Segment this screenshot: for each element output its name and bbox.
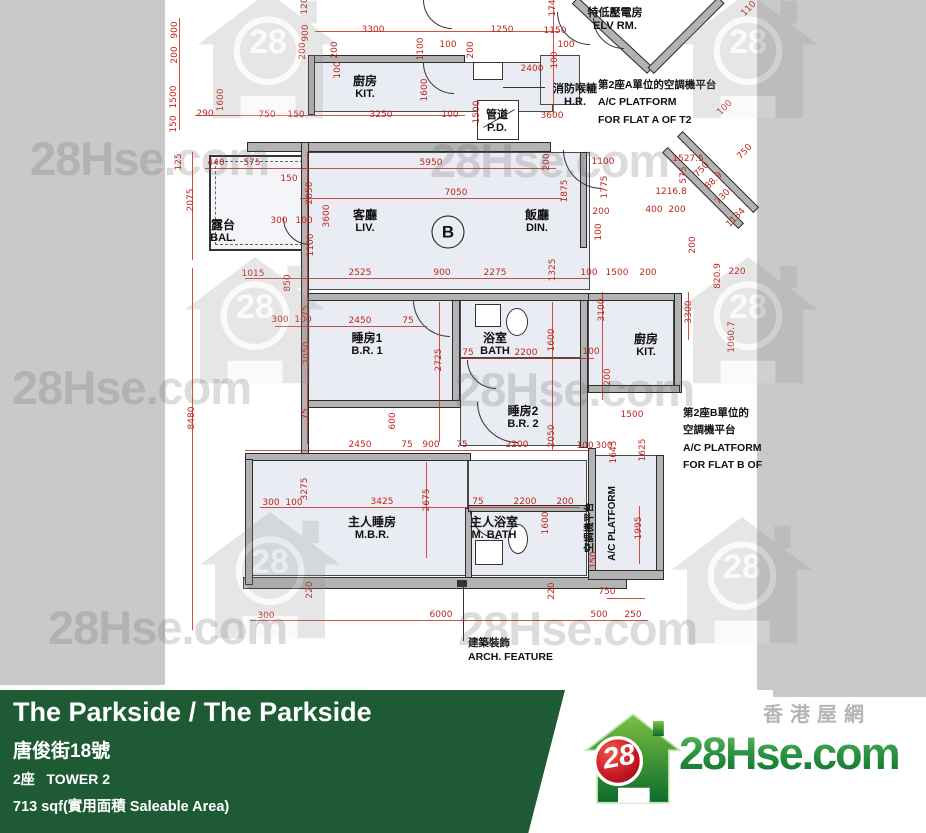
dimension-label: 200 (668, 205, 685, 215)
dimension-label: 3600 (541, 111, 564, 121)
dimension-label: 1500 (472, 101, 482, 124)
estate-area: 713 sqf(實用面積 Saleable Area) (13, 795, 229, 816)
dimension-label: 100 (550, 51, 560, 68)
dimension-label: 200 (170, 46, 180, 63)
dimension-label: 100 (441, 110, 458, 120)
dimension-label: 575 (679, 166, 689, 183)
dimension-label: 750 (735, 142, 754, 161)
dimension-label: 100 (580, 268, 597, 278)
dimension-label: 75 (301, 408, 311, 419)
dimension-label: 2050 (302, 342, 312, 365)
dimension-label: 220 (547, 582, 557, 599)
dimension-label: 150 (280, 174, 297, 184)
dimension-label: 3425 (371, 497, 394, 507)
dimension-label: 300 (270, 216, 287, 226)
dimension-label: 750 (598, 587, 615, 597)
dimension-label: 7050 (445, 188, 468, 198)
dimension-label: 2200 (515, 348, 538, 358)
dimension-label: 75 (462, 348, 473, 358)
dimension-label: 1600 (420, 79, 430, 102)
dimension-label: 750 (258, 110, 275, 120)
dimension-label: 200 (330, 41, 340, 58)
dimension-label: 850 (283, 274, 293, 291)
background-corner (773, 690, 926, 697)
dimension-label: 200 (639, 268, 656, 278)
dimension-label: 250 (624, 610, 641, 620)
dimension-label: 100 (333, 61, 343, 78)
dimension-label: 75 (401, 440, 412, 450)
dimension-label: 1527.5 (672, 154, 704, 164)
dimension-label: 900 (433, 268, 450, 278)
dimension-label: 3100 (597, 299, 607, 322)
dimension-label: 820.9 (713, 263, 723, 289)
dimension-label: 100 (439, 40, 456, 50)
dimension-label: 1995 (634, 517, 644, 540)
dimension-label: 1600 (216, 89, 226, 112)
dimension-label: 75 (301, 305, 311, 316)
dimension-label: 2400 (521, 64, 544, 74)
dimension-label: 2725 (434, 349, 444, 372)
dimension-label: 110 (739, 0, 758, 19)
dimension-label: 2450 (349, 440, 372, 450)
dimension-label: 575 (243, 158, 260, 168)
dimension-label: 200 (298, 42, 308, 59)
dimension-label: 6000 (430, 610, 453, 620)
dimension-label: 100 (295, 216, 312, 226)
dimension-label: 1100 (306, 234, 316, 257)
dimension-label: 1216.8 (655, 187, 687, 197)
dimension-label: 300 (271, 315, 288, 325)
dimension-label: 2675 (422, 489, 432, 512)
estate-tower: 2座 TOWER 2 (13, 769, 110, 789)
floor-plan-sheet: 廚房 KIT. 露台 BAL. 客廳 LIV. B 飯廳 DIN. 睡房1 B.… (165, 0, 757, 690)
dimension-label: 200 (556, 497, 573, 507)
dimension-label: 100 (576, 441, 593, 451)
dimension-label: 2200 (514, 497, 537, 507)
dimension-label: 8480 (187, 407, 197, 430)
dimension-label: 900 (170, 21, 180, 38)
dimension-label: 2275 (484, 268, 507, 278)
dimension-label: 200 (603, 368, 613, 385)
dimension-layer: 9002001500150160029075015032501003300125… (165, 0, 757, 690)
dimension-label: 1134 (724, 206, 747, 229)
dimension-label: 3600 (322, 205, 332, 228)
dimension-label: 3300 (362, 25, 385, 35)
dimension-label: 120 (300, 0, 310, 15)
footer-bar: The Parkside / The Parkside 唐俊街18號 2座 TO… (0, 690, 926, 833)
logo-wordmark: 28Hse.com (679, 728, 899, 780)
dimension-label: 1625 (638, 439, 648, 462)
dimension-label: 200 (688, 236, 698, 253)
dimension-label: 150 (169, 115, 179, 132)
dimension-label: 900 (422, 440, 439, 450)
dimension-label: 100 (557, 40, 574, 50)
dimension-label: 2075 (186, 189, 196, 212)
dimension-label: 150 (589, 551, 599, 568)
dimension-label: 1600 (541, 512, 551, 535)
dimension-label: 1775 (600, 176, 610, 199)
dimension-label: 1250 (491, 25, 514, 35)
dimension-label: 1060.7 (727, 321, 737, 353)
dimension-label: 1500 (606, 268, 629, 278)
dimension-label: 1150 (544, 26, 567, 36)
logo-tagline: 香港屋網 (763, 698, 871, 727)
dimension-label: 2450 (349, 316, 372, 326)
dimension-label: 1325 (548, 259, 558, 282)
dimension-label: 1100 (416, 38, 426, 61)
dimension-label: 75 (402, 316, 413, 326)
dimension-label: 200 (466, 41, 476, 58)
estate-title: The Parkside / The Parkside (13, 697, 372, 728)
dimension-label: 300 (257, 611, 274, 621)
dimension-label: 100 (594, 223, 604, 240)
dimension-label: 1875 (560, 180, 570, 203)
estate-address: 唐俊街18號 (13, 736, 110, 763)
dimension-label: 2200 (506, 440, 529, 450)
28hse-logo: 28 28Hse.com 香港屋網 (583, 698, 926, 828)
dimension-label: 2050 (547, 425, 557, 448)
dimension-label: 3300 (684, 301, 694, 324)
dimension-label: 1500 (621, 410, 644, 420)
dimension-label: 290 (196, 109, 213, 119)
dimension-label: 900 (301, 24, 311, 41)
dimension-label: 3250 (370, 110, 393, 120)
dimension-label: 75 (456, 440, 467, 450)
dimension-label: 2050 (305, 182, 315, 205)
dimension-label: 1600 (547, 329, 557, 352)
dimension-label: 174 (548, 0, 558, 17)
dimension-label: 1500 (169, 86, 179, 109)
dimension-label: 500 (590, 610, 607, 620)
dimension-label: 440 (207, 158, 224, 168)
dimension-label: 220 (305, 581, 315, 598)
dimension-label: 600 (388, 412, 398, 429)
dimension-label: 5950 (420, 158, 443, 168)
dimension-label: 300 (262, 498, 279, 508)
dimension-label: 730 (713, 187, 732, 206)
dimension-label: 200 (592, 207, 609, 217)
dimension-label: 1645 (609, 441, 619, 464)
dimension-label: 200 (542, 153, 552, 170)
dimension-label: 2525 (349, 268, 372, 278)
dimension-label: 88.9 (703, 170, 724, 191)
dimension-label: 100 (582, 347, 599, 357)
dimension-label: 100 (285, 498, 302, 508)
dimension-label: 220 (728, 267, 745, 277)
dimension-label: 1100 (592, 157, 615, 167)
dimension-label: 125 (174, 153, 184, 170)
dimension-label: 100 (715, 98, 734, 117)
dimension-label: 75 (472, 497, 483, 507)
dimension-label: 1015 (242, 269, 265, 279)
dimension-label: 150 (287, 110, 304, 120)
dimension-label: 400 (645, 205, 662, 215)
page: 廚房 KIT. 露台 BAL. 客廳 LIV. B 飯廳 DIN. 睡房1 B.… (0, 0, 926, 833)
